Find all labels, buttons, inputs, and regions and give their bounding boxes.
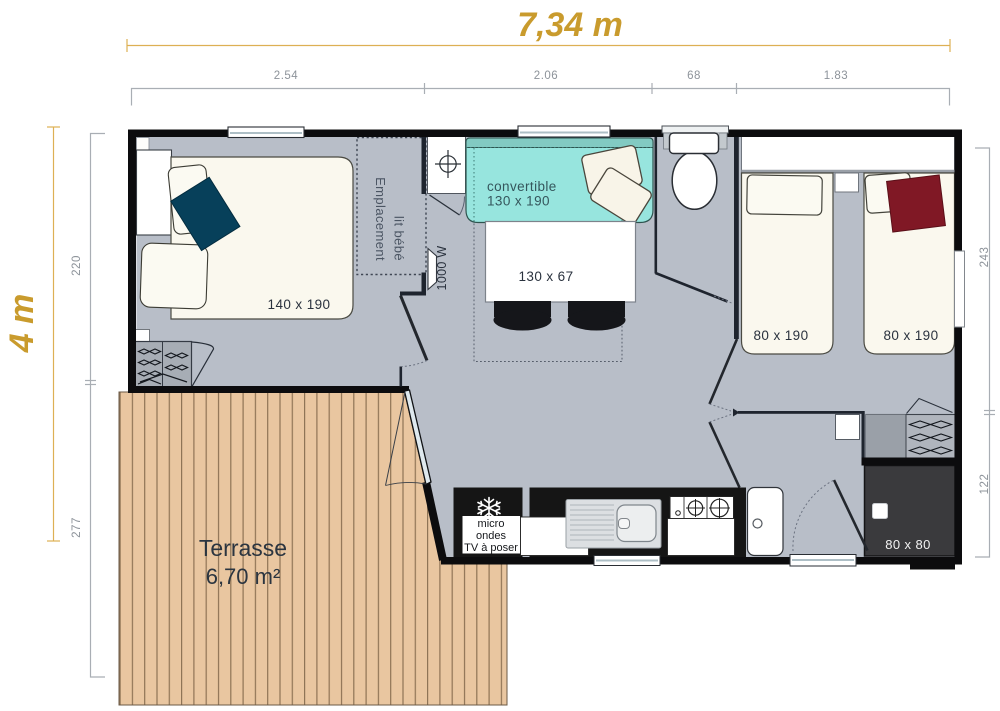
svg-text:Emplacement: Emplacement (373, 177, 388, 261)
svg-text:130 x 67: 130 x 67 (519, 269, 574, 284)
svg-text:1.83: 1.83 (824, 70, 848, 82)
svg-text:122: 122 (979, 474, 991, 495)
svg-text:Terrasse: Terrasse (199, 535, 287, 561)
svg-text:80 x 190: 80 x 190 (884, 328, 939, 343)
svg-text:7,34 m: 7,34 m (517, 6, 623, 44)
svg-text:convertible: convertible (487, 179, 557, 194)
svg-text:80 x 190: 80 x 190 (754, 328, 809, 343)
svg-text:68: 68 (687, 70, 701, 82)
svg-text:micro: micro (478, 518, 505, 530)
svg-text:140 x 190: 140 x 190 (268, 297, 331, 312)
svg-text:2.54: 2.54 (274, 70, 298, 82)
svg-text:lit bébé: lit bébé (392, 216, 407, 261)
svg-text:2.06: 2.06 (534, 70, 558, 82)
svg-text:4 m: 4 m (3, 294, 41, 354)
svg-text:TV à poser: TV à poser (464, 542, 518, 554)
svg-text:130 x 190: 130 x 190 (487, 194, 550, 209)
svg-text:80 x 80: 80 x 80 (885, 537, 930, 552)
svg-text:220: 220 (71, 255, 83, 276)
svg-text:6,70 m²: 6,70 m² (206, 564, 281, 589)
svg-text:277: 277 (71, 517, 83, 538)
svg-text:1000 W: 1000 W (435, 246, 449, 291)
svg-text:243: 243 (979, 247, 991, 268)
svg-text:ondes: ondes (476, 530, 506, 542)
